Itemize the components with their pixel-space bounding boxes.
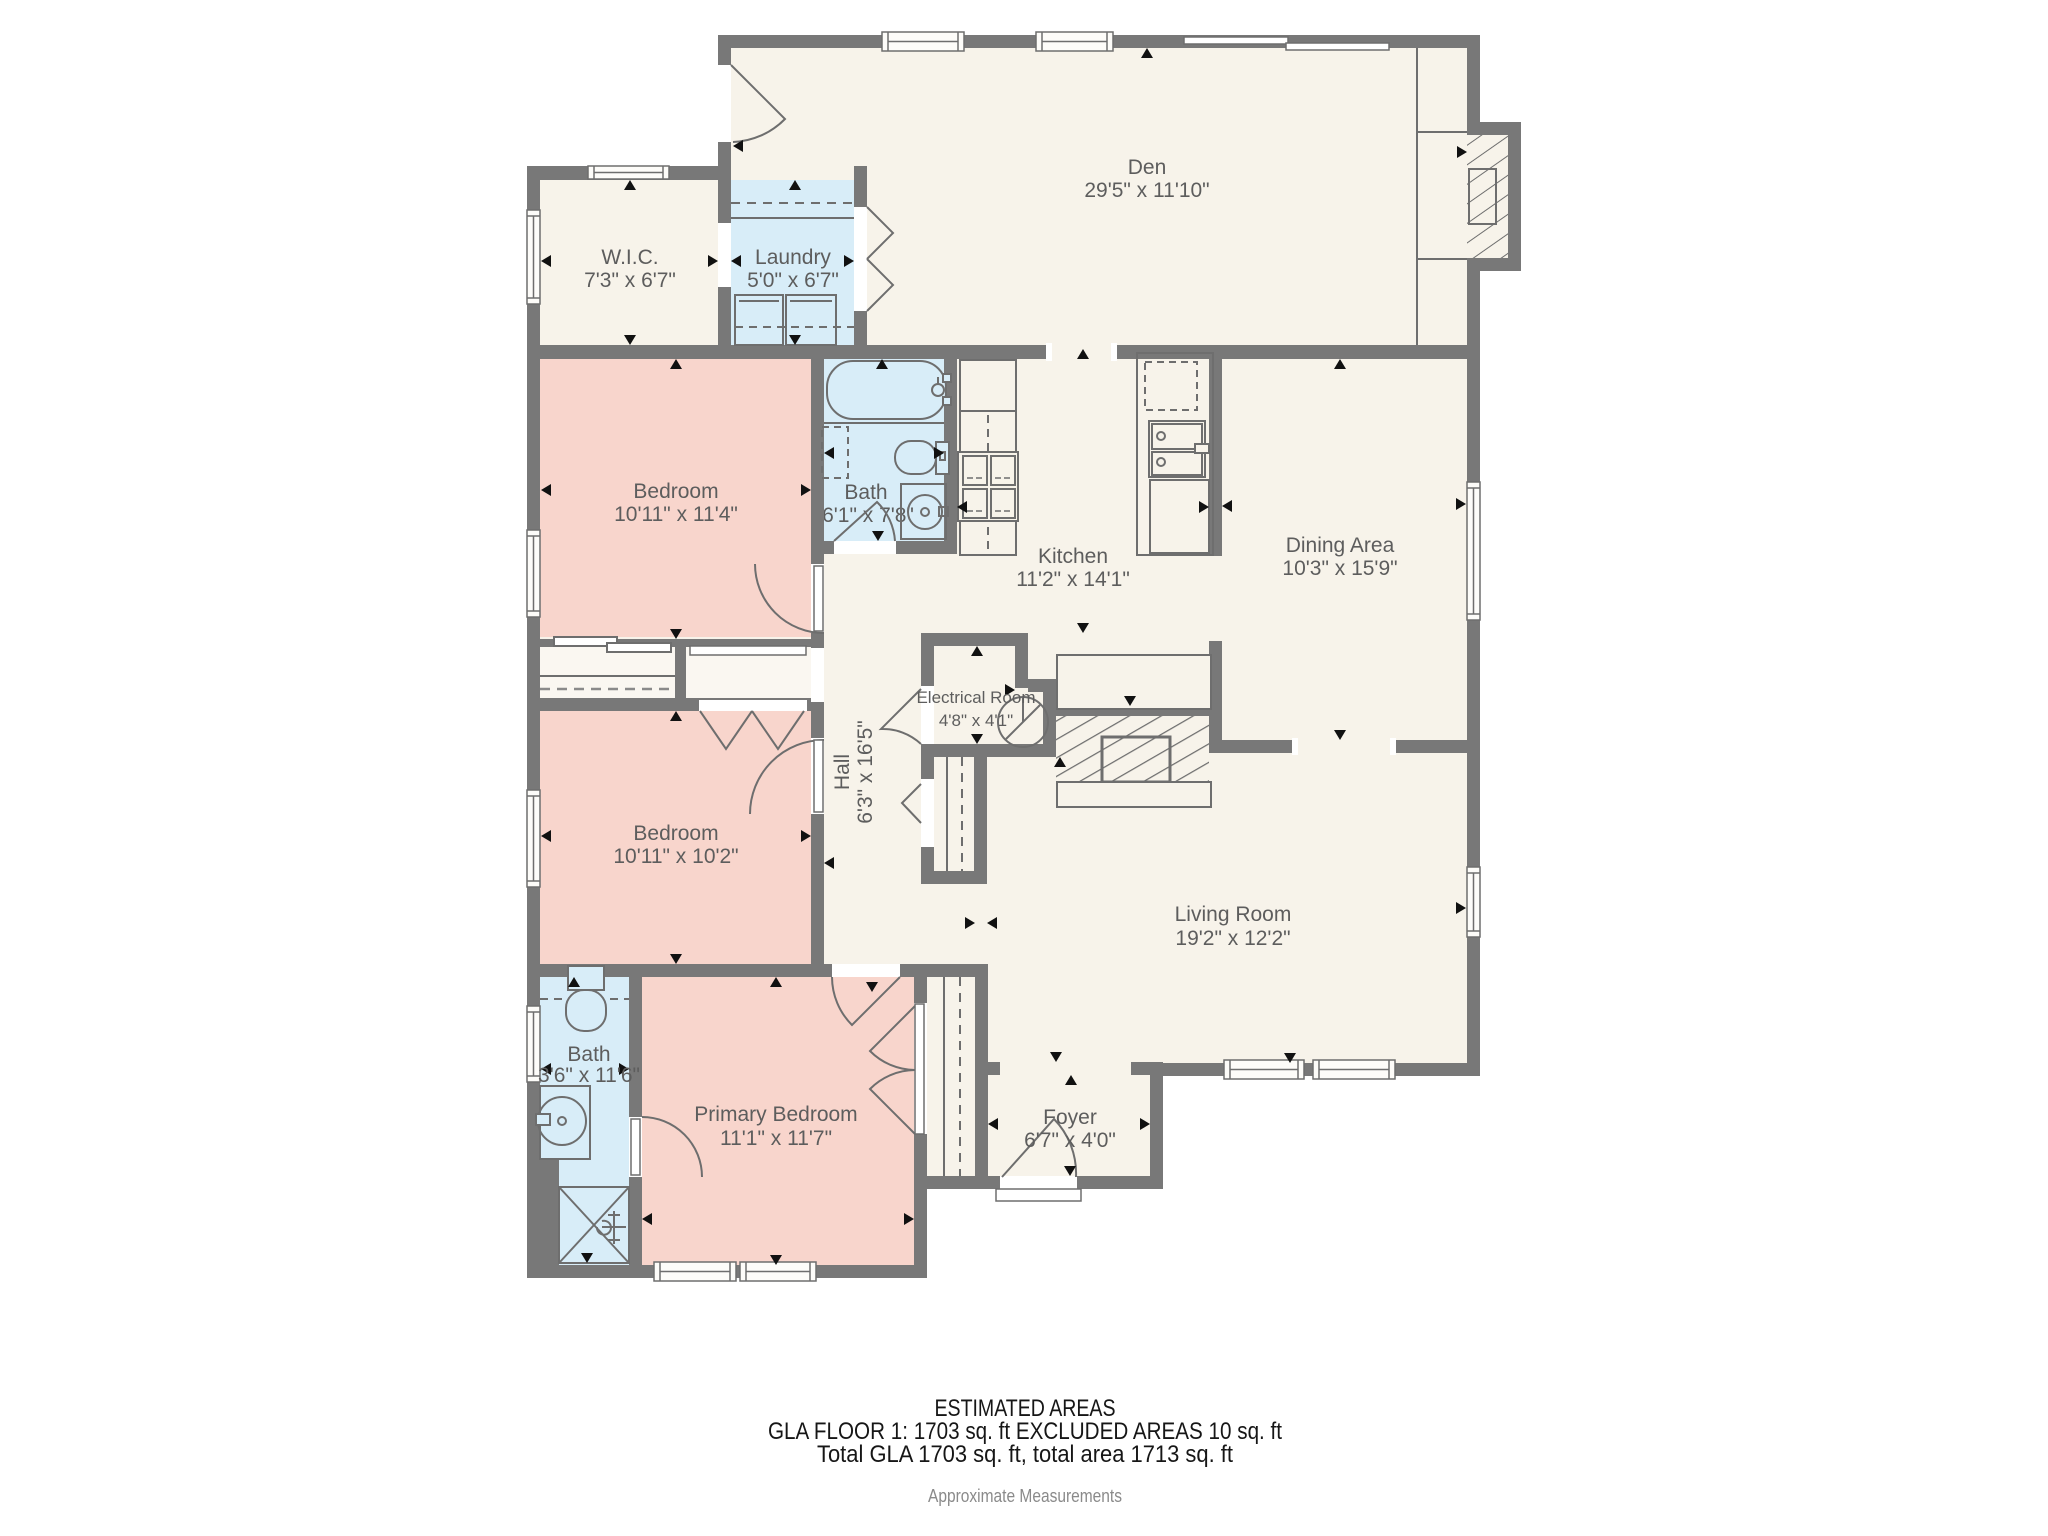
svg-text:Bedroom: Bedroom <box>633 480 718 503</box>
svg-text:Bath: Bath <box>567 1043 610 1066</box>
svg-text:Laundry: Laundry <box>755 246 831 269</box>
svg-text:11'1" x 11'7": 11'1" x 11'7" <box>720 1127 832 1150</box>
svg-text:Bedroom: Bedroom <box>633 822 718 845</box>
svg-text:Primary Bedroom: Primary Bedroom <box>694 1103 857 1126</box>
svg-text:10'11" x 11'4": 10'11" x 11'4" <box>614 503 738 526</box>
svg-text:Dining Area: Dining Area <box>1286 534 1395 557</box>
svg-text:Den: Den <box>1128 156 1167 179</box>
svg-text:Foyer: Foyer <box>1043 1106 1097 1129</box>
svg-text:3'6" x 11'6": 3'6" x 11'6" <box>538 1064 640 1087</box>
svg-text:Approximate Measurements: Approximate Measurements <box>928 1486 1122 1506</box>
svg-text:Kitchen: Kitchen <box>1038 545 1108 568</box>
svg-text:Hall: Hall <box>831 754 854 790</box>
svg-text:29'5" x 11'10": 29'5" x 11'10" <box>1084 179 1209 202</box>
svg-text:Total GLA 1703 sq. ft, total a: Total GLA 1703 sq. ft, total area 1713 s… <box>817 1441 1233 1468</box>
svg-text:6'3" x 16'5": 6'3" x 16'5" <box>854 720 877 824</box>
svg-text:W.I.C.: W.I.C. <box>601 246 658 269</box>
svg-text:11'2" x 14'1": 11'2" x 14'1" <box>1016 568 1130 591</box>
svg-text:7'3" x 6'7": 7'3" x 6'7" <box>584 269 676 292</box>
svg-text:19'2" x 12'2": 19'2" x 12'2" <box>1175 927 1290 950</box>
svg-text:Living Room: Living Room <box>1175 903 1292 926</box>
svg-text:6'7" x 4'0": 6'7" x 4'0" <box>1024 1129 1116 1152</box>
svg-text:10'3" x 15'9": 10'3" x 15'9" <box>1282 557 1397 580</box>
svg-text:4'8" x 4'1": 4'8" x 4'1" <box>939 711 1013 730</box>
svg-text:10'11" x 10'2": 10'11" x 10'2" <box>613 845 738 868</box>
svg-text:Electrical Room: Electrical Room <box>916 688 1035 707</box>
svg-text:5'0" x 6'7": 5'0" x 6'7" <box>747 269 839 292</box>
svg-text:Bath: Bath <box>844 481 887 504</box>
